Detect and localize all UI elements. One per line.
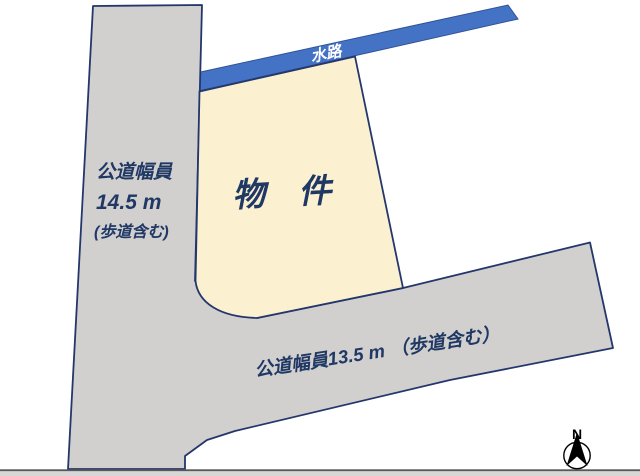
compass-north-label: N — [572, 426, 582, 442]
left-road-label-line2: 14.5 m — [96, 191, 161, 214]
bottom-border-line — [0, 469, 640, 471]
bottom-border-strip — [0, 471, 640, 476]
compass: N — [564, 426, 590, 469]
left-road-label-line1: 公道幅員 — [96, 161, 173, 183]
plot-diagram-canvas: 水路 物 件 公道幅員 14.5 m (歩道含む) 公道幅員13.5 m （歩道… — [0, 0, 640, 476]
plot-diagram-svg: 水路 物 件 公道幅員 14.5 m (歩道含む) 公道幅員13.5 m （歩道… — [0, 0, 640, 476]
parcel-label: 物 件 — [231, 171, 335, 213]
left-road-label-line3: (歩道含む) — [94, 223, 169, 241]
